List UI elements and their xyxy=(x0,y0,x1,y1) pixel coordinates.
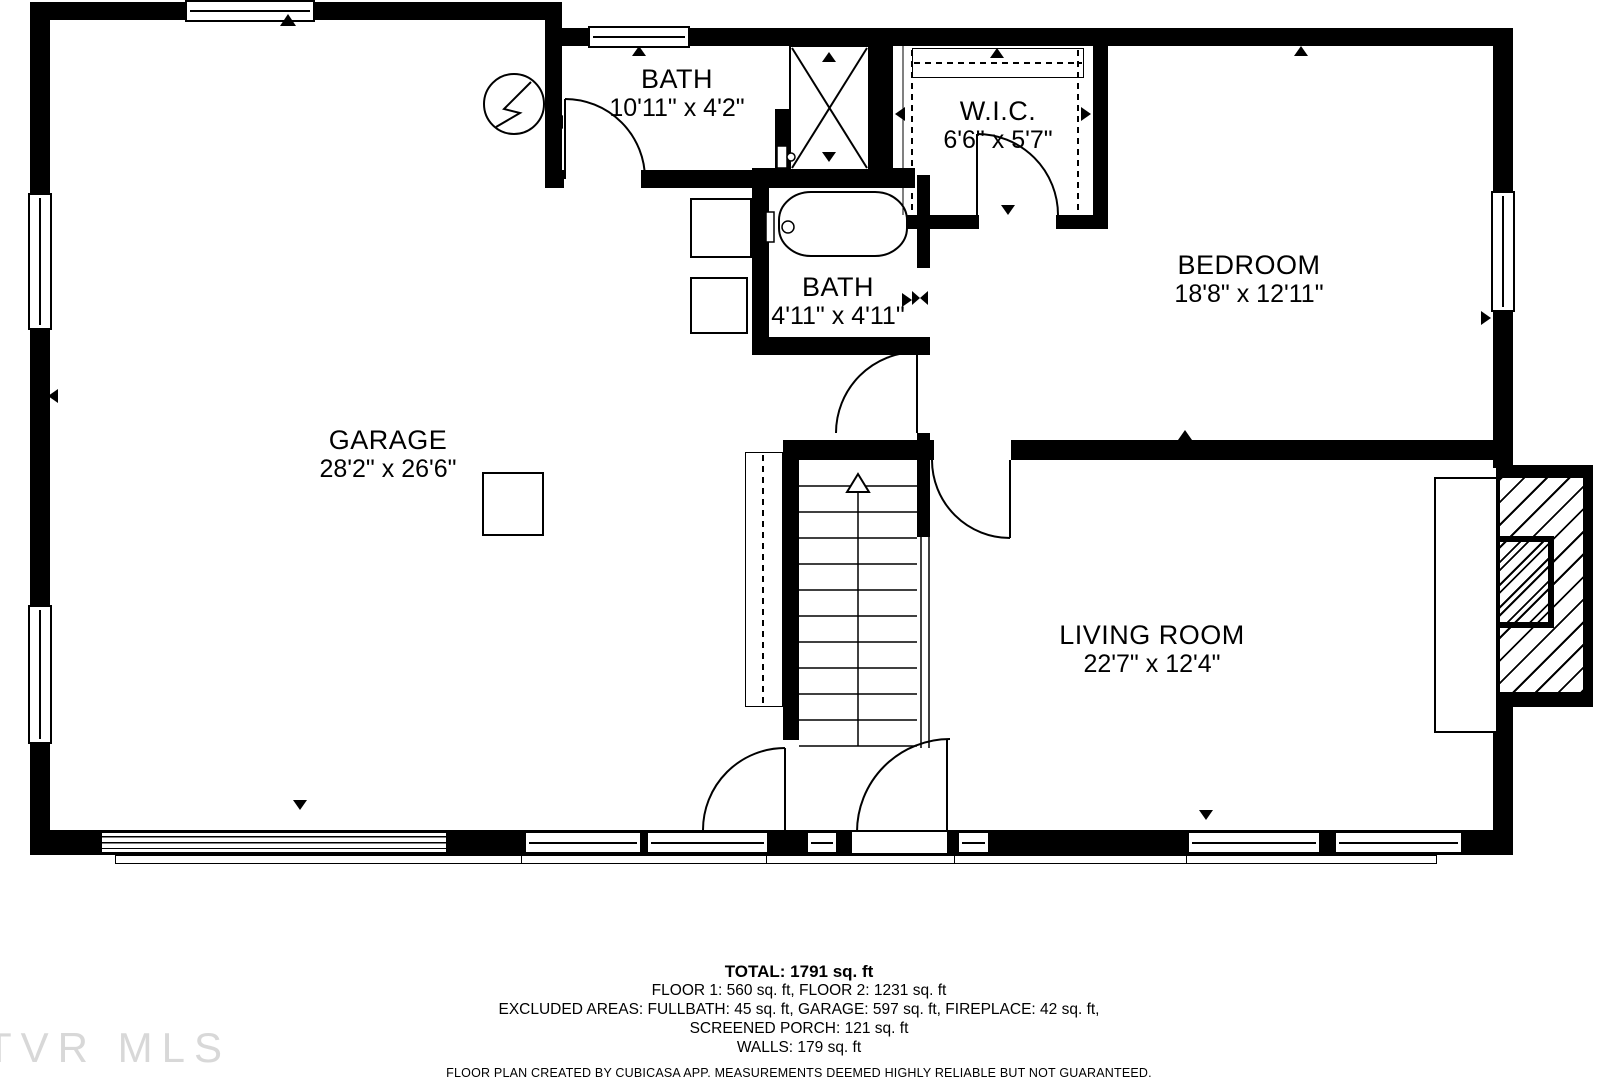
room-dims: 4'11" x 4'11" xyxy=(771,302,904,330)
room-name: BATH xyxy=(609,64,744,94)
disclaimer-text: FLOOR PLAN CREATED BY CUBICASA APP. MEAS… xyxy=(0,1066,1598,1080)
porch-divider xyxy=(521,856,522,863)
water-heater-square xyxy=(482,472,544,536)
room-dims: 18'8" x 12'11" xyxy=(1174,280,1323,308)
wic-shelf xyxy=(912,48,1084,78)
summary-excluded-2: SCREENED PORCH: 121 sq. ft xyxy=(0,1019,1598,1038)
door-front xyxy=(857,739,950,832)
window-garage-top xyxy=(185,0,315,22)
stairs-direction-icon xyxy=(847,474,869,746)
room-name: BEDROOM xyxy=(1174,250,1323,280)
summary-excluded-1: EXCLUDED AREAS: FULLBATH: 45 sq. ft, GAR… xyxy=(0,1000,1598,1019)
floor-plan-page: BATH 10'11" x 4'2" W.I.C. 6'6" x 5'7" BE… xyxy=(0,0,1598,1086)
room-dims: 22'7" x 12'4" xyxy=(1059,650,1245,678)
sidelite-right xyxy=(957,831,990,854)
fireplace-hearth xyxy=(1434,477,1498,733)
vanity-sink-2 xyxy=(690,277,748,334)
window-living-bottom-2 xyxy=(1334,831,1463,854)
room-dims: 28'2" x 26'6" xyxy=(319,455,456,483)
wall-living-top xyxy=(930,440,1498,460)
wall-bath2-left xyxy=(752,168,769,355)
bathtub-icon xyxy=(766,192,907,256)
vanity-sink-1 xyxy=(690,198,752,258)
door-living-room xyxy=(932,460,1010,538)
wall-bath2-bottom xyxy=(752,337,930,355)
front-door-sill xyxy=(852,830,947,855)
door-hall xyxy=(836,352,917,433)
plan-lineart xyxy=(0,0,1598,1086)
door-garage-entry xyxy=(703,748,785,830)
room-name: GARAGE xyxy=(319,425,456,455)
porch-divider xyxy=(954,856,955,863)
wall-bath-left xyxy=(545,20,562,172)
garage-door xyxy=(100,831,448,854)
room-label-garage: GARAGE 28'2" x 26'6" xyxy=(319,425,456,483)
wall-top-main xyxy=(545,28,1513,46)
room-name: W.I.C. xyxy=(943,96,1052,126)
summary-total: TOTAL: 1791 sq. ft xyxy=(0,962,1598,981)
shower-icon xyxy=(790,46,869,170)
doorway-wic xyxy=(977,215,1058,229)
window-bedroom-right xyxy=(1491,191,1515,312)
mls-watermark: TVR MLS xyxy=(0,1024,231,1072)
doorway-living-room xyxy=(932,440,1013,460)
room-name: LIVING ROOM xyxy=(1059,620,1245,650)
window-garage-left-2 xyxy=(28,605,52,744)
wall-shower-right xyxy=(869,46,893,188)
window-bottom-a xyxy=(524,831,642,854)
room-label-bath-upper: BATH 10'11" x 4'2" xyxy=(609,64,744,122)
screened-porch-strip xyxy=(115,855,1437,864)
wall-tubroom-top xyxy=(752,168,915,188)
porch-divider xyxy=(766,856,767,863)
wall-wic-right xyxy=(1093,46,1108,227)
room-label-living-room: LIVING ROOM 22'7" x 12'4" xyxy=(1059,620,1245,678)
summary-walls: WALLS: 179 sq. ft xyxy=(0,1038,1598,1057)
doorway-bath-upper xyxy=(562,170,643,188)
summary-floors: FLOOR 1: 560 sq. ft, FLOOR 2: 1231 sq. f… xyxy=(0,981,1598,1000)
window-garage-left-1 xyxy=(28,193,52,330)
room-name: BATH xyxy=(771,272,904,302)
area-summary: TOTAL: 1791 sq. ft FLOOR 1: 560 sq. ft, … xyxy=(0,962,1598,1057)
room-label-wic: W.I.C. 6'6" x 5'7" xyxy=(943,96,1052,154)
window-bottom-b xyxy=(646,831,769,854)
room-label-bath-lower: BATH 4'11" x 4'11" xyxy=(771,272,904,330)
understair-closet xyxy=(745,452,783,707)
room-dims: 10'11" x 4'2" xyxy=(609,94,744,122)
room-dims: 6'6" x 5'7" xyxy=(943,126,1052,154)
wall-stair-top xyxy=(783,440,930,460)
staircase xyxy=(799,486,929,748)
porch-divider xyxy=(1186,856,1187,863)
window-living-bottom-1 xyxy=(1187,831,1321,854)
room-label-bedroom: BEDROOM 18'8" x 12'11" xyxy=(1174,250,1323,308)
electrical-panel-icon xyxy=(484,74,544,134)
wall-stair-left xyxy=(783,440,799,740)
window-bath-top xyxy=(588,26,690,48)
sidelite-left xyxy=(806,831,838,854)
fireplace-firebox xyxy=(1496,536,1554,628)
